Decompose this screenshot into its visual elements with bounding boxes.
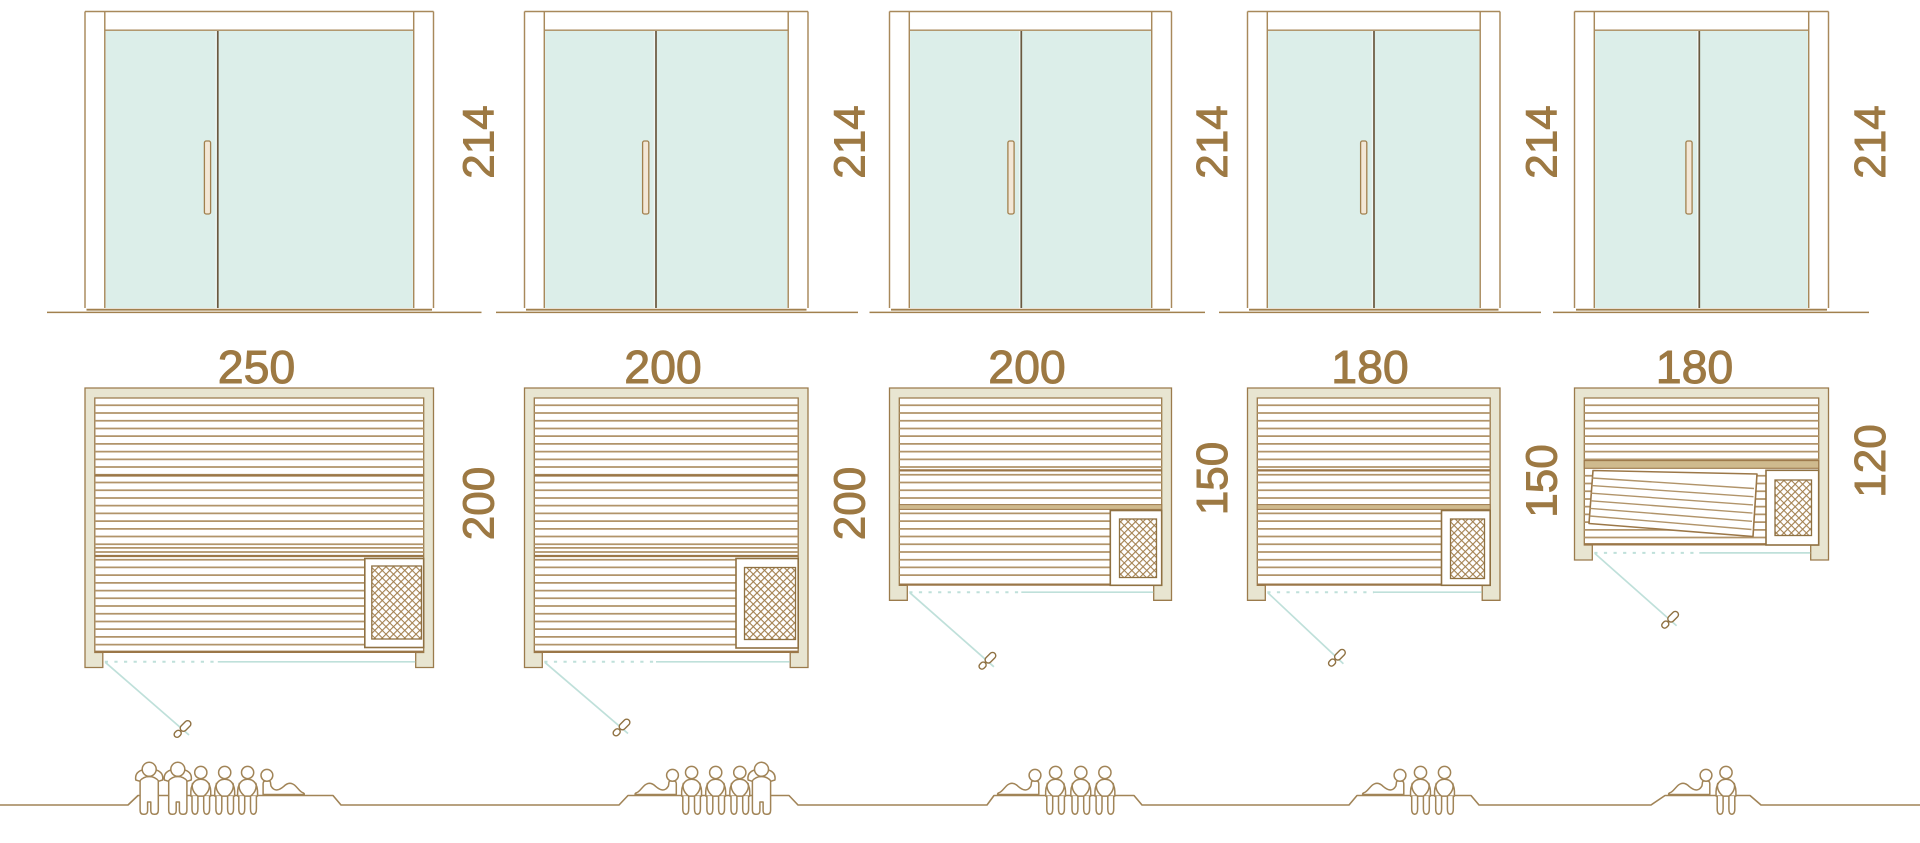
svg-text:200: 200 (826, 467, 875, 540)
svg-text:180: 180 (1656, 341, 1734, 393)
svg-text:180: 180 (1331, 341, 1409, 393)
svg-text:150: 150 (1518, 444, 1567, 517)
svg-text:120: 120 (1846, 424, 1895, 497)
svg-text:214: 214 (455, 105, 504, 178)
svg-text:214: 214 (1846, 105, 1895, 178)
svg-text:200: 200 (455, 467, 504, 540)
svg-text:200: 200 (624, 341, 702, 393)
svg-text:214: 214 (1188, 105, 1237, 178)
svg-text:250: 250 (218, 341, 296, 393)
svg-text:150: 150 (1188, 442, 1237, 515)
svg-text:214: 214 (1518, 105, 1567, 178)
svg-text:214: 214 (826, 105, 875, 178)
svg-text:200: 200 (988, 341, 1066, 393)
